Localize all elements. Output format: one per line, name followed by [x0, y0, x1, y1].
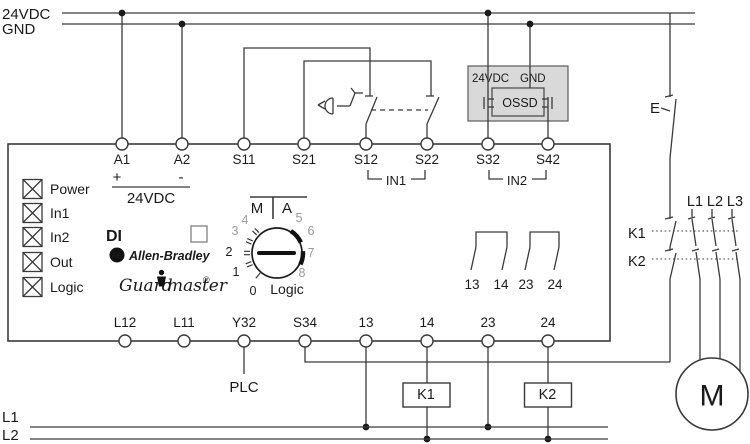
in1-label: IN1 [386, 173, 406, 188]
dial-pos-8: 8 [299, 266, 306, 280]
plus-label: + [113, 169, 122, 186]
plc-label: PLC [229, 379, 258, 396]
minus-label: - [179, 169, 184, 186]
terminal-label: 13 [358, 315, 373, 330]
indicator-label: Logic [50, 279, 83, 295]
phase-l3-label: L3 [727, 194, 743, 210]
terminal-label: S11 [232, 152, 255, 167]
motor-label: M [700, 380, 725, 413]
indicator-label: Power [50, 181, 90, 197]
actuator-icon [318, 88, 363, 114]
in2-label: IN2 [507, 173, 527, 188]
dial-pos-5: 5 [296, 211, 303, 225]
top-power-rails: 24VDC GND [2, 6, 695, 138]
model-label: DI [106, 228, 122, 245]
contact-label-23: 23 [518, 277, 533, 292]
dial-pos-2: 2 [226, 245, 233, 259]
ossd-device: 24VDC GND OSSD [468, 10, 568, 138]
registered-mark: ® [203, 275, 210, 285]
ossd-gnd-label: GND [520, 73, 546, 85]
terminal-label: S12 [354, 152, 378, 167]
led-window [191, 226, 207, 242]
dial-pos-4: 4 [242, 213, 249, 227]
terminal-label: 14 [419, 315, 435, 330]
terminal-a1 [116, 138, 128, 150]
terminal-label: Y32 [232, 315, 256, 330]
contact-label-13: 13 [464, 277, 479, 292]
dial-pos-1: 1 [233, 265, 240, 279]
k1-k2-phase-contacts [688, 209, 740, 372]
terminal-14 [421, 335, 433, 347]
k2-contact-label: K2 [628, 254, 646, 270]
dial-arc [300, 251, 303, 264]
terminal-label: L11 [173, 315, 195, 330]
indicator-label: In1 [50, 205, 70, 221]
terminal-label: S22 [415, 152, 439, 167]
interlock-switch-circuit [244, 48, 439, 138]
plc-connection: PLC [229, 347, 258, 396]
phase-l1-label: L1 [687, 194, 703, 210]
junction-dot [527, 21, 534, 28]
rail-gnd-label: GND [2, 21, 36, 38]
dial-mode-a: A [282, 200, 292, 217]
brand-label: Allen-Bradley [128, 249, 211, 263]
terminal-l11 [178, 335, 190, 347]
junction-dot [485, 10, 492, 17]
terminal-13 [360, 335, 372, 347]
terminal-s21 [298, 138, 310, 150]
bottom-rails: L1 L2 [2, 409, 608, 444]
junction-dot [119, 10, 126, 17]
indicator-label: Out [50, 254, 73, 270]
terminal-a2 [176, 138, 188, 150]
dial-label: Logic [270, 281, 303, 297]
contact-label-24: 24 [547, 277, 563, 292]
junction-dot [179, 21, 186, 28]
terminal-l12 [119, 335, 131, 347]
terminal-label: L12 [114, 315, 137, 330]
contact-label-14: 14 [493, 277, 509, 292]
terminal-s11 [238, 138, 250, 150]
terminal-s32 [482, 138, 494, 150]
motor-power-circuit: L1 L2 L3 K1 K2 M [628, 194, 748, 430]
terminal-s34 [299, 335, 311, 347]
terminal-s42 [542, 138, 554, 150]
rail-l2-label: L2 [2, 427, 19, 444]
terminal-label: S32 [476, 152, 500, 167]
terminal-s22 [421, 138, 433, 150]
dial-mode-m: M [251, 200, 264, 217]
k2-coil-label: K2 [539, 387, 557, 403]
guardmaster-right: master [167, 276, 228, 296]
terminal-label: 24 [540, 315, 556, 330]
k1-coil-label: K1 [417, 387, 435, 403]
rail-l1-label: L1 [2, 409, 19, 426]
terminal-label: S42 [536, 152, 560, 167]
terminal-y32 [238, 335, 250, 347]
phase-l2-label: L2 [707, 194, 723, 210]
terminal-24 [542, 335, 554, 347]
terminal-23 [482, 335, 494, 347]
ab-monogram: AB [112, 253, 122, 260]
indicator-label: In2 [50, 229, 70, 245]
terminal-s12 [360, 138, 372, 150]
ossd-label: OSSD [502, 96, 537, 110]
reset-label: E [650, 100, 660, 117]
ossd-24vdc-label: 24VDC [472, 73, 509, 85]
terminal-label: S34 [293, 315, 318, 330]
supply-24vdc-label: 24VDC [127, 190, 176, 207]
wiring-diagram: 24VDC GND [0, 0, 750, 444]
reset-edm-chain: E [650, 13, 676, 362]
terminal-label: S21 [292, 152, 316, 167]
terminal-label: 23 [480, 315, 495, 330]
k1-contact-label: K1 [628, 226, 646, 242]
dial-pos-0: 0 [250, 284, 257, 298]
terminal-label: A1 [114, 152, 131, 167]
output-wiring: K1 K2 [363, 347, 572, 442]
dial-pos-7: 7 [308, 246, 315, 260]
dial-pos-6: 6 [308, 224, 315, 238]
terminal-label: A2 [174, 152, 191, 167]
dial-pos-3: 3 [232, 224, 239, 238]
